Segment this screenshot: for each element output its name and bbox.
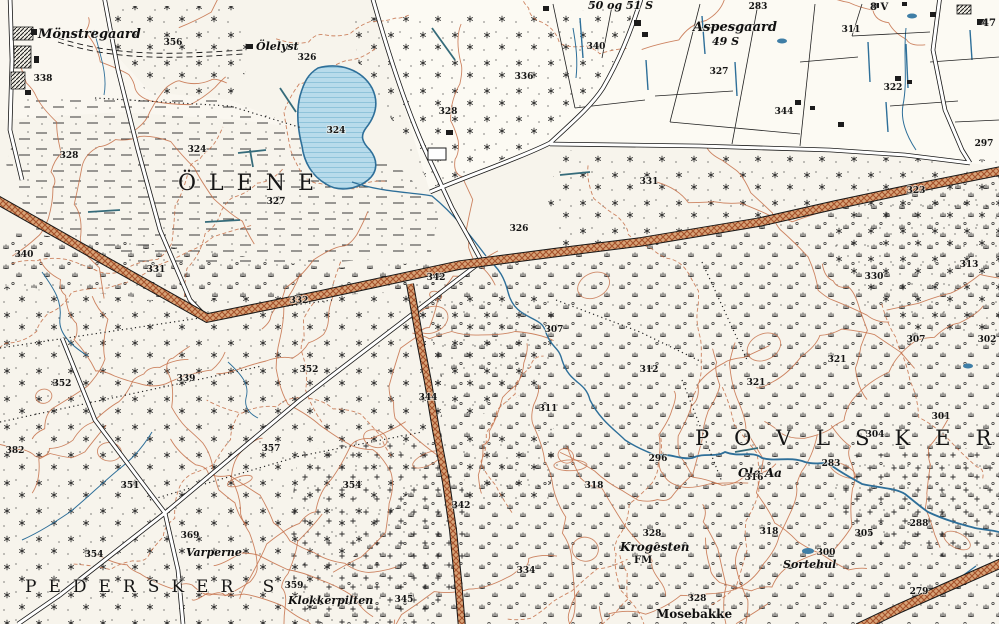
spot-height: 297 <box>975 139 994 149</box>
spot-height: 352 <box>300 365 319 375</box>
pond <box>907 14 917 19</box>
spot-height: 328 <box>439 107 458 117</box>
spot-height: 307 <box>907 335 926 345</box>
spot-height: 279 <box>910 587 929 597</box>
spot-height: 326 <box>298 53 317 63</box>
spot-height: 301 <box>932 412 951 422</box>
spot-height: 321 <box>747 378 766 388</box>
map-canvas: ÖLENE POVLSKER PEDERSKER S Mönstregaard … <box>0 0 999 624</box>
spot-height: 311 <box>539 404 558 414</box>
place-mosebakke: Mosebakke <box>656 607 732 621</box>
spot-height: 338 <box>34 74 53 84</box>
spot-height: 354 <box>343 481 362 491</box>
spot-height: 318 <box>585 481 604 491</box>
plot-47s: 47 S <box>982 18 999 29</box>
spot-height: 354 <box>85 550 104 560</box>
place-klokkerpilten: Klokkerpilten <box>287 594 373 607</box>
region-name-pedersker: PEDERSKER S <box>25 577 286 597</box>
spot-height: 316 <box>745 473 764 483</box>
spot-height: 382 <box>6 446 25 456</box>
spot-height: 328 <box>60 151 79 161</box>
spot-height: 352 <box>53 379 72 389</box>
spot-height: 288 <box>910 519 929 529</box>
place-krogesten: Krogesten <box>619 540 689 554</box>
spot-height: 359 <box>285 581 304 591</box>
spot-height: 302 <box>978 335 997 345</box>
label-fm: FM <box>634 555 652 566</box>
spot-height: 321 <box>828 355 847 365</box>
spot-height: 327 <box>267 197 286 207</box>
region-name-olene: ÖLENE <box>178 169 327 196</box>
spot-height: 369 <box>181 531 200 541</box>
spot-height: 313 <box>960 260 979 270</box>
spot-height: 322 <box>884 83 903 93</box>
spot-height: 336 <box>515 72 534 82</box>
pond-sortehul <box>802 548 814 554</box>
spot-height: 339 <box>177 374 196 384</box>
spot-height: 357 <box>262 444 281 454</box>
place-sortehul: Sortehul <box>783 558 836 571</box>
spot-height: 340 <box>15 250 34 260</box>
spot-height: 328 <box>688 594 707 604</box>
spot-height: 324 <box>327 126 346 136</box>
spot-height: 283 <box>822 459 841 469</box>
pond <box>777 39 787 44</box>
spot-height: 305 <box>855 529 874 539</box>
spot-height: 311 <box>842 25 861 35</box>
spot-height: 340 <box>587 42 606 52</box>
spot-height: 296 <box>649 454 668 464</box>
spot-height: 334 <box>517 566 536 576</box>
spot-height: 326 <box>510 224 529 234</box>
spot-height: 356 <box>164 38 183 48</box>
spot-height: 323 <box>907 186 926 196</box>
spot-height: 328 <box>643 529 662 539</box>
pond <box>963 364 973 369</box>
spot-height: 342 <box>427 273 446 283</box>
cadastral-label: 50 og 51 S <box>588 0 653 12</box>
place-aspesgaard-number: 49 S <box>712 35 739 48</box>
place-varperne: Varperne <box>186 546 242 559</box>
plot-8v: 8 V <box>870 2 888 13</box>
place-aspesgaard: Aspesgaard <box>691 20 777 35</box>
topographic-map: ÖLENE POVLSKER PEDERSKER S Mönstregaard … <box>0 0 999 624</box>
spot-height: 332 <box>290 296 309 306</box>
spot-height: 345 <box>395 595 414 605</box>
spot-height: 330 <box>865 272 884 282</box>
place-olelyst: Ölelyst <box>256 39 299 53</box>
region-name-povlsker: POVLSKER <box>695 426 999 450</box>
spot-height: 344 <box>775 107 794 117</box>
place-monstregaard: Mönstregaard <box>37 27 141 42</box>
spot-height: 300 <box>817 548 836 558</box>
spot-height: 307 <box>545 325 564 335</box>
spot-height: 327 <box>710 67 729 77</box>
spot-height: 331 <box>147 265 166 275</box>
spot-height: 351 <box>121 481 140 491</box>
spot-height: 304 <box>866 430 885 440</box>
spot-height: 344 <box>419 393 438 403</box>
spot-height: 331 <box>640 177 659 187</box>
spot-height: 283 <box>749 2 768 12</box>
spot-height: 318 <box>760 527 779 537</box>
spot-height: 324 <box>188 145 207 155</box>
spot-height: 312 <box>640 365 659 375</box>
spot-height: 342 <box>452 501 471 511</box>
